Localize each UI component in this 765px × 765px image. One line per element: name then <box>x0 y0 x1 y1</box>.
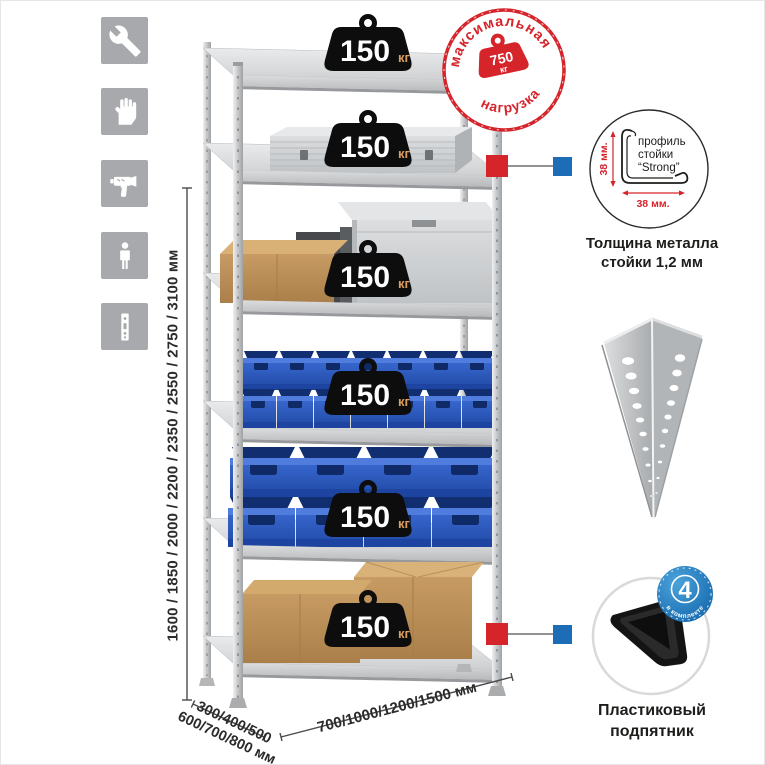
weight-value: 150 <box>340 501 390 534</box>
shelf-weight-badge: 150 кг <box>308 478 428 544</box>
person-icon <box>108 239 142 273</box>
icon-tile-rack-post <box>101 303 148 350</box>
weight-unit: кг <box>398 146 411 161</box>
height-dimension-label: 1600 / 1850 / 2000 / 2200 / 2350 / 2550 … <box>165 176 182 716</box>
profile-label-line2: стойки <box>638 149 673 161</box>
profile-caption-line2: стойки 1,2 мм <box>572 253 732 272</box>
foot-caption-line2: подпятник <box>570 721 734 742</box>
product-infographic: 1600 / 1850 / 2000 / 2200 / 2350 / 2550 … <box>0 0 765 765</box>
shelf-weight-badge: 150 кг <box>308 356 428 422</box>
connector-blue-square <box>553 625 572 644</box>
connector-blue-square <box>553 157 572 176</box>
weight-value: 150 <box>340 261 390 294</box>
weight-unit: кг <box>398 50 411 65</box>
wrench-icon <box>108 24 142 58</box>
shelf-weight-badge: 150 кг <box>308 588 428 654</box>
weight-value: 150 <box>340 35 390 68</box>
foot-caption-line1: Пластиковый <box>570 700 734 721</box>
weight-unit: кг <box>398 394 411 409</box>
profile-callout-diagram: 38 мм. 38 мм. профиль стойки “Strong” <box>585 105 715 235</box>
icon-tile-person <box>101 232 148 279</box>
profile-height-label: 38 мм. <box>598 142 610 175</box>
badge-value: 4 <box>678 577 692 604</box>
callout-connector-top <box>486 155 572 177</box>
icon-tile-gloves <box>101 88 148 135</box>
weight-unit: кг <box>398 626 411 641</box>
shelf-weight-badge: 150 кг <box>308 238 428 304</box>
connector-red-square <box>486 623 508 645</box>
weight-unit: кг <box>398 516 411 531</box>
angle-post-image <box>588 303 718 528</box>
profile-label-line3: “Strong” <box>638 162 680 174</box>
connector-red-square <box>486 155 508 177</box>
max-load-stamp: максимальная нагрузка 750 кг <box>438 4 570 136</box>
quantity-badge: 4 в комплекте <box>654 563 716 625</box>
foot-caption: Пластиковый подпятник <box>570 700 734 742</box>
profile-width-label: 38 мм. <box>636 198 669 210</box>
shelf-weight-badge: 150 кг <box>308 108 428 174</box>
profile-label-line1: профиль <box>638 136 686 148</box>
rack-post-icon <box>108 310 142 344</box>
gloves-icon <box>108 95 142 129</box>
weight-value: 150 <box>340 611 390 644</box>
weight-unit: кг <box>398 276 411 291</box>
weight-value: 150 <box>340 379 390 412</box>
profile-caption-line1: Толщина металла <box>572 234 732 253</box>
profile-caption: Толщина металла стойки 1,2 мм <box>572 234 732 272</box>
height-dimension-line <box>182 188 192 700</box>
icon-tile-drill <box>101 160 148 207</box>
drill-icon <box>108 167 142 201</box>
callout-connector-bottom <box>486 623 572 645</box>
weight-value: 150 <box>340 131 390 164</box>
icon-tile-tools <box>101 17 148 64</box>
shelf-weight-badge: 150 кг <box>308 12 428 78</box>
